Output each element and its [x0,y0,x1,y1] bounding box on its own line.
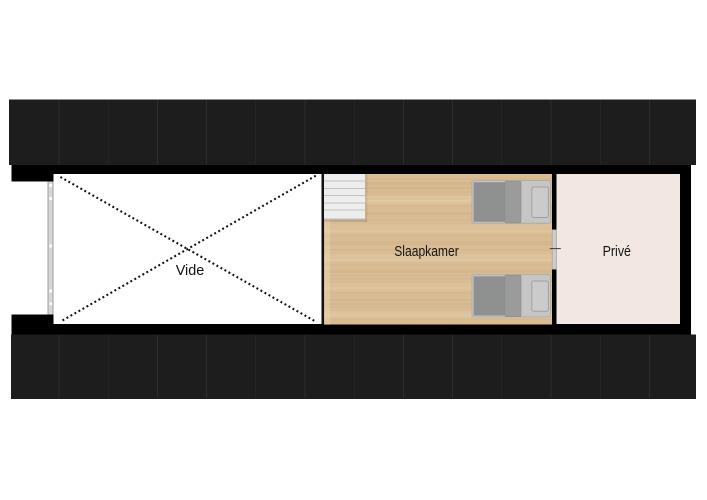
svg-text:Privé: Privé [603,244,631,260]
svg-text:Vide: Vide [176,263,205,279]
svg-text:Slaapkamer: Slaapkamer [394,244,459,260]
